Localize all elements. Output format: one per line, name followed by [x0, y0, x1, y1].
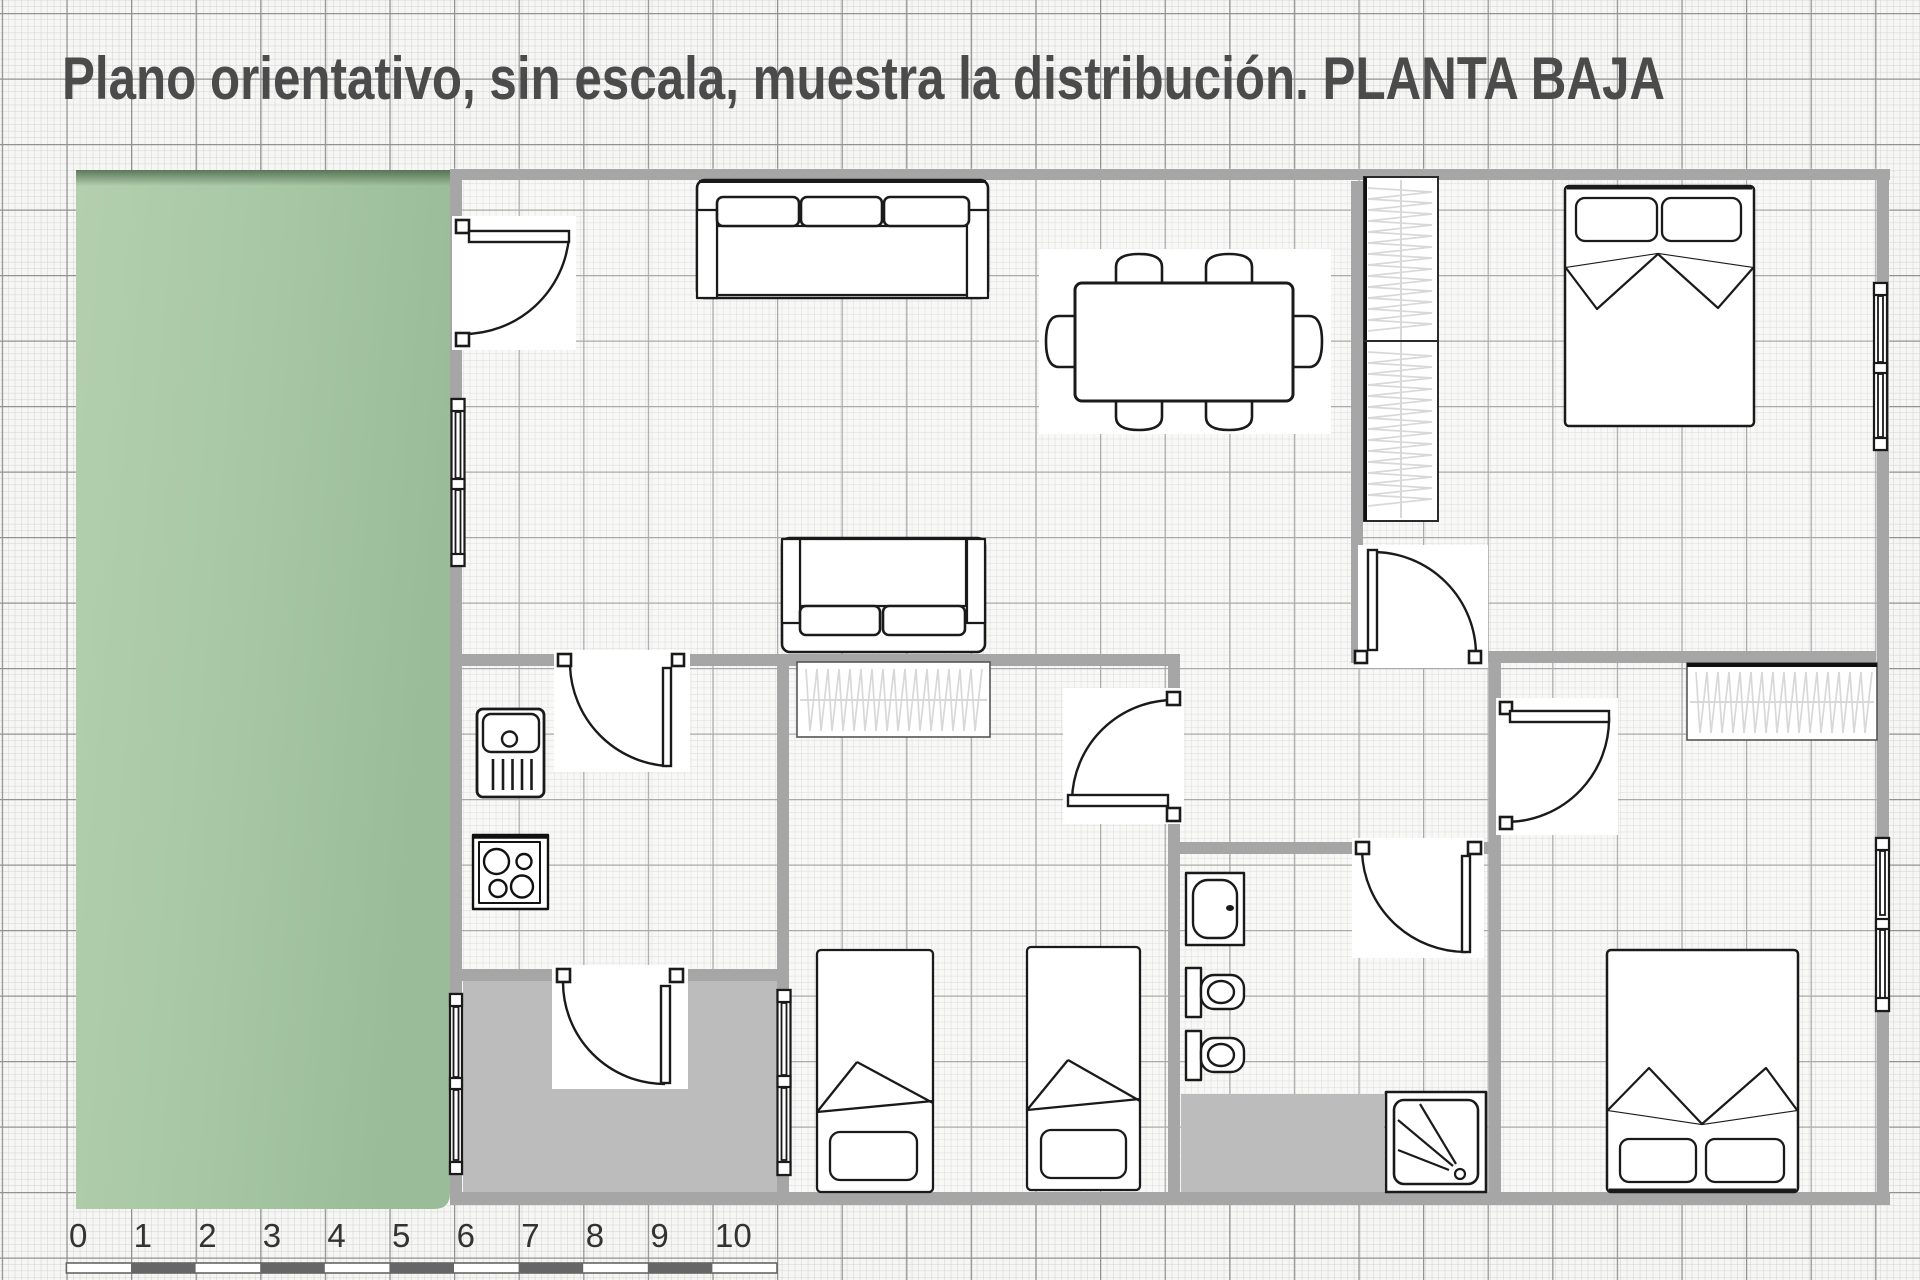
- svg-text:4: 4: [327, 1217, 345, 1254]
- svg-text:8: 8: [586, 1217, 604, 1254]
- svg-text:Plano orientativo, sin escala,: Plano orientativo, sin escala, muestra l…: [62, 45, 1665, 112]
- svg-text:3: 3: [263, 1217, 281, 1254]
- svg-text:7: 7: [521, 1217, 539, 1254]
- svg-text:6: 6: [457, 1217, 475, 1254]
- svg-text:5: 5: [392, 1217, 410, 1254]
- svg-text:1: 1: [134, 1217, 152, 1254]
- svg-text:10: 10: [715, 1217, 752, 1254]
- svg-text:0: 0: [69, 1217, 87, 1254]
- svg-text:2: 2: [198, 1217, 216, 1254]
- svg-text:9: 9: [650, 1217, 668, 1254]
